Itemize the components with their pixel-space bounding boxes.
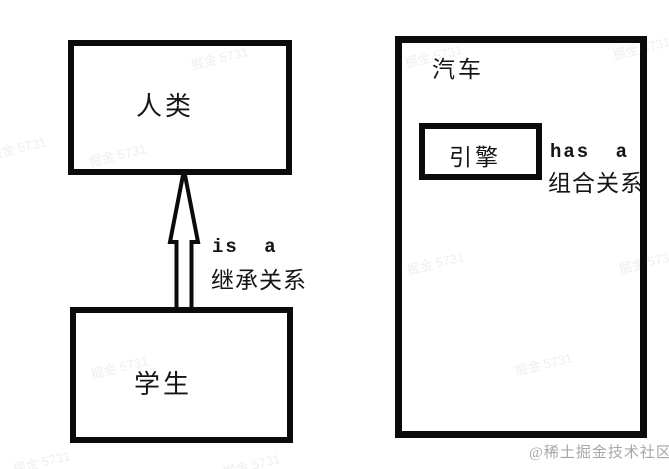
watermark-tile: 掘金 5731	[0, 131, 48, 164]
is-a-relation-label: is a	[212, 236, 278, 258]
whole-class-box	[395, 36, 647, 438]
inheritance-relation-label: 继承关系	[211, 261, 307, 295]
uml-relationship-diagram: 掘金 5731 掘金 5731 掘金 5731 掘金 5731 掘金 5731 …	[0, 0, 669, 469]
watermark-tile: 掘金 5731	[11, 445, 72, 469]
part-class-box	[419, 123, 542, 180]
inheritance-arrow-icon	[160, 166, 210, 312]
credit-watermark: @稀土掘金技术社区	[529, 441, 669, 462]
watermark-tile: 掘金 5731	[221, 448, 282, 469]
parent-class-box	[68, 40, 292, 175]
child-class-box	[70, 307, 293, 443]
